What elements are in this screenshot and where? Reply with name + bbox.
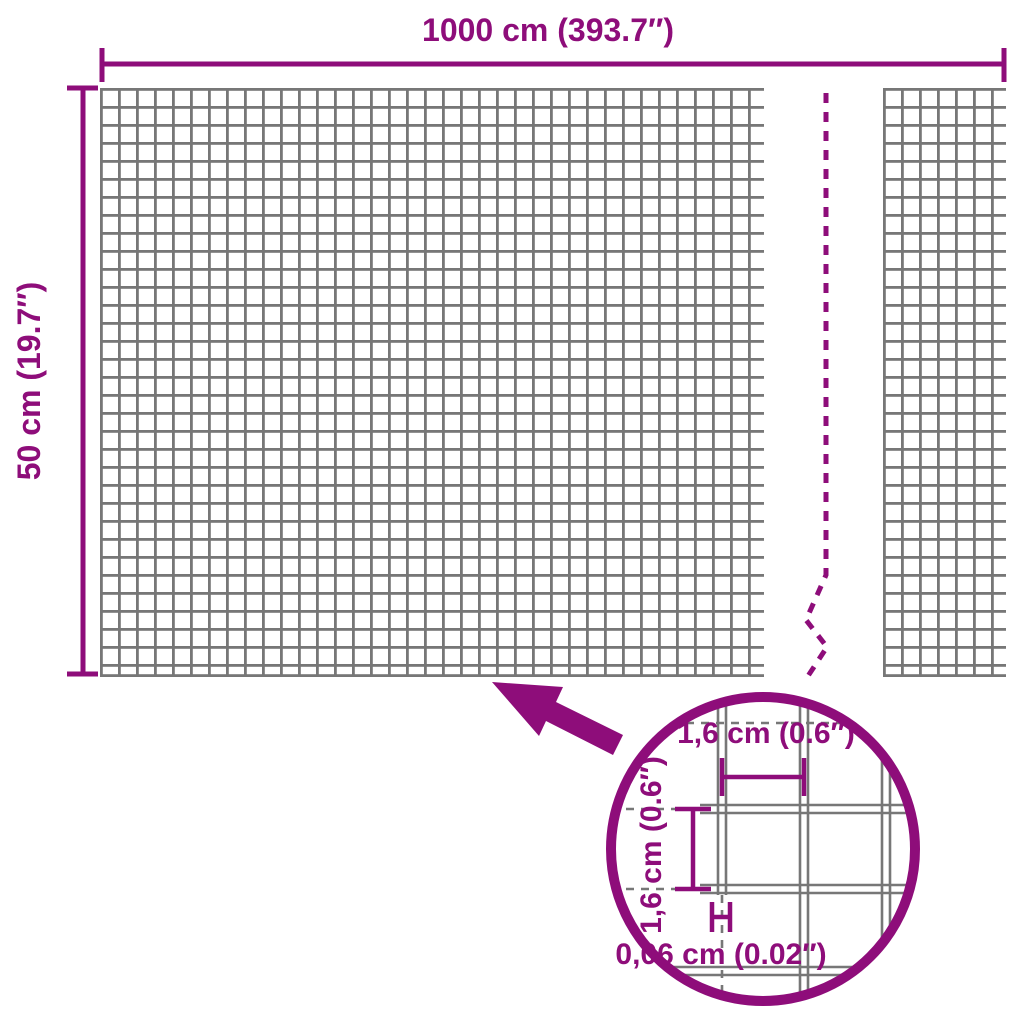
mesh-panel-left	[100, 88, 764, 677]
wire-thickness-label: 0,06 cm (0.02″)	[615, 938, 826, 971]
break-line	[806, 93, 827, 676]
mesh-height-label: 1,6 cm (0.6″)	[635, 756, 668, 934]
detail-magnifier: 1,6 cm (0.6″) 1,6 cm (0.6″) 0,06 cm (0.0…	[611, 697, 915, 1001]
mesh-panel-right	[883, 88, 1006, 677]
mesh-roll-dimension-drawing: 1000 cm (393.7″) 50 cm (19.7″)	[0, 0, 1024, 1024]
mesh-width-label: 1,6 cm (0.6″)	[677, 717, 855, 750]
product-dimension-diagram: 1000 cm (393.7″) 50 cm (19.7″)	[0, 0, 1024, 1024]
zoom-arrow-icon	[492, 682, 623, 755]
height-dimension-label: 50 cm (19.7″)	[11, 282, 47, 481]
length-dimension-label: 1000 cm (393.7″)	[422, 12, 674, 48]
height-dimension: 50 cm (19.7″)	[11, 88, 98, 674]
length-dimension: 1000 cm (393.7″)	[102, 12, 1004, 82]
